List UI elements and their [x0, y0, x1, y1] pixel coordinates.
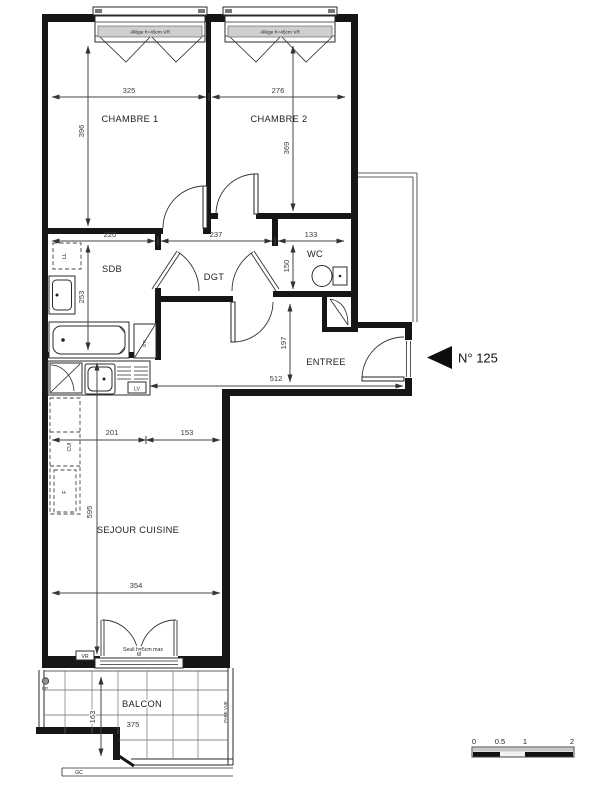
label-chambre2: CHAMBRE 2 — [251, 114, 308, 124]
unit-marker: N° 125 — [427, 346, 498, 369]
fixtures: LL GTL LV — [48, 243, 351, 514]
door-sdb — [152, 251, 199, 291]
door-sejour — [231, 302, 273, 342]
floor-plan-svg: Allège h=45cm VR Allège h=45cm VR — [0, 0, 602, 800]
dishwasher-label: LV — [134, 387, 140, 393]
unit-number: N° 125 — [458, 351, 498, 366]
annotations: VR Seuil h=5cm max N° 125 0 0.5 1 2 — [76, 346, 574, 757]
floor-plan-page: Allège h=45cm VR Allège h=45cm VR — [0, 0, 602, 800]
dim-balcon-width: 375 — [127, 720, 140, 729]
threshold-note: Seuil h=5cm max — [123, 647, 163, 653]
fridge-label: F — [62, 490, 68, 493]
door-chambre2 — [216, 174, 258, 214]
corridor-outline — [358, 173, 417, 322]
kitchen-counter: LV — [48, 361, 150, 395]
balcony-tiles — [44, 671, 228, 759]
dim-dgt-width: 237 — [210, 230, 223, 239]
dim-chambre2-width: 276 — [272, 86, 285, 95]
label-entree: ENTREE — [306, 357, 346, 367]
entry-closet — [322, 296, 351, 332]
unit-arrow-icon — [427, 346, 452, 369]
washing-machine-label: LL — [62, 253, 68, 259]
dim-wc-width: 133 — [305, 230, 318, 239]
kitchen-units-label: CUI — [67, 443, 73, 452]
scale-05: 0.5 — [495, 737, 505, 746]
dim-chambre1-height: 396 — [77, 125, 86, 138]
dim-entree-width: 512 — [270, 374, 283, 383]
rainwater-label: EP — [42, 686, 48, 691]
dim-kitchen-zone: 201 — [106, 428, 119, 437]
dim-sejour-height: 595 — [85, 506, 94, 519]
dim-balcon-height: 163 — [88, 711, 97, 724]
technical-duct: GTL — [134, 324, 156, 358]
label-balcon: BALCON — [122, 699, 162, 709]
gutter-line: GC — [62, 768, 233, 776]
scale-0: 0 — [472, 737, 476, 746]
duct-label: GTL — [142, 338, 147, 347]
window-note-2: Allège h=45cm VR — [260, 30, 300, 36]
door-chambre1 — [163, 186, 207, 228]
privacy-screen-label: PARE VUE — [223, 701, 228, 723]
window-note-1: Allège h=45cm VR — [130, 30, 170, 36]
toilet — [312, 266, 347, 287]
gutter-label: GC — [75, 770, 83, 776]
door-entree — [362, 337, 412, 381]
scale-1: 1 — [523, 737, 527, 746]
room-labels: CHAMBRE 1 CHAMBRE 2 SDB DGT WC ENTREE SE… — [97, 114, 346, 709]
label-chambre1: CHAMBRE 1 — [102, 114, 159, 124]
dim-wc-height: 150 — [282, 260, 291, 273]
doors — [95, 174, 412, 668]
door-wc — [232, 251, 279, 291]
label-sdb: SDB — [102, 264, 122, 274]
window-chambre2: Allège h=45cm VR — [223, 7, 337, 62]
bathtub — [49, 322, 129, 358]
label-wc: WC — [307, 249, 323, 259]
window-chambre1: Allège h=45cm VR — [93, 7, 207, 62]
label-sejour: SEJOUR CUISINE — [97, 525, 179, 535]
rainwater-pipe: EP — [42, 678, 49, 691]
scale-2: 2 — [570, 737, 574, 746]
dim-sejour-width: 354 — [130, 581, 143, 590]
washing-machine-slot: LL — [53, 243, 81, 269]
dim-chambre2-height: 369 — [282, 142, 291, 155]
washbasin — [49, 276, 75, 314]
kitchen-units: CUI F — [50, 398, 80, 514]
door-balcon-french — [95, 620, 183, 668]
label-dgt: DGT — [204, 272, 225, 282]
dim-entree-height: 197 — [279, 337, 288, 350]
dim-chambre1-width: 325 — [123, 86, 136, 95]
dim-sdb-width: 220 — [104, 230, 117, 239]
dim-dining-zone: 153 — [181, 428, 194, 437]
dim-sdb-height: 253 — [77, 291, 86, 304]
scale-bar: 0 0.5 1 2 — [472, 737, 574, 757]
shutter-label: VR — [81, 654, 88, 660]
